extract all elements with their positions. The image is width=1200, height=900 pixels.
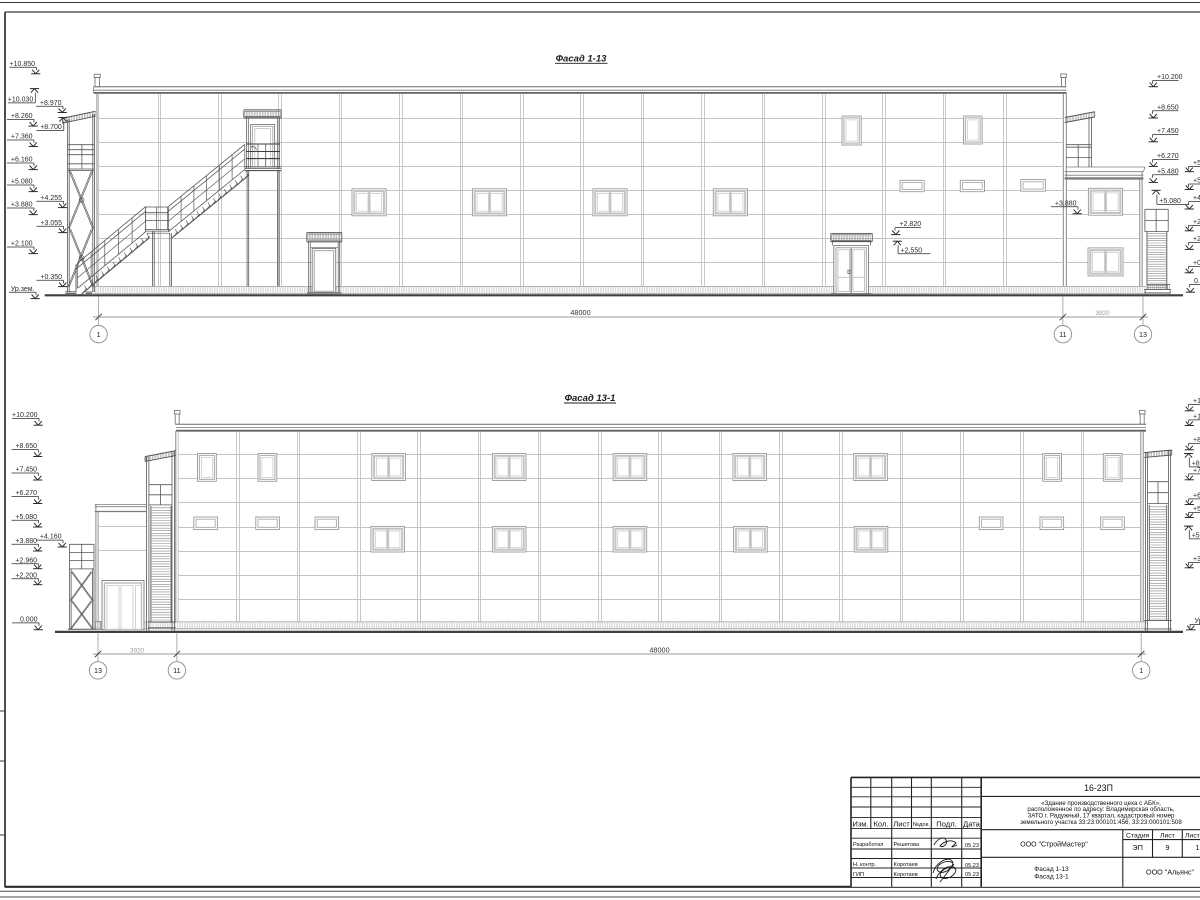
svg-text:+5.080: +5.080 [1193,506,1200,513]
svg-text:3920: 3920 [1095,310,1110,317]
svg-text:+6.160: +6.160 [11,157,33,164]
svg-text:+5.080: +5.080 [1159,198,1181,205]
svg-text:Коротаев: Коротаев [894,872,918,878]
svg-text:+5.480: +5.480 [1193,178,1200,185]
svg-text:№док.: №док. [913,822,930,828]
svg-text:+10.850: +10.850 [10,61,36,68]
svg-text:+8.970: +8.970 [1193,437,1200,444]
svg-text:Кол.: Кол. [873,819,888,828]
svg-text:Ур.зем.: Ур.зем. [11,286,35,293]
svg-text:+10.200: +10.200 [1157,74,1183,81]
svg-text:9: 9 [1165,843,1169,852]
svg-text:+6.270: +6.270 [15,490,37,497]
svg-text:+5.480: +5.480 [1157,168,1179,175]
svg-text:+8.650: +8.650 [1157,104,1179,111]
svg-text:+6.270: +6.270 [1157,153,1179,160]
svg-text:Подл.: Подл. [936,819,957,828]
svg-text:Ур.зем.: Ур.зем. [1195,618,1200,625]
svg-text:Изм.: Изм. [852,819,868,828]
svg-text:+8.260: +8.260 [11,113,33,120]
svg-text:+3.880: +3.880 [11,202,33,209]
svg-text:0.000: 0.000 [20,617,38,624]
svg-text:+5.080: +5.080 [11,179,33,186]
svg-text:+2.100: +2.100 [11,241,33,248]
svg-text:+5.080: +5.080 [15,514,37,521]
svg-text:Листов: Листов [1185,832,1200,839]
svg-text:+8.970: +8.970 [40,100,62,107]
svg-text:48000: 48000 [649,645,669,654]
svg-text:+0.350: +0.350 [1193,260,1200,267]
svg-text:05.23: 05.23 [965,872,979,878]
svg-text:05.23: 05.23 [965,843,979,849]
svg-text:+4.255: +4.255 [40,195,62,202]
svg-text:Фасад 1-13: Фасад 1-13 [1034,866,1069,873]
svg-text:+0.350: +0.350 [40,274,62,281]
svg-text:1: 1 [1139,666,1143,675]
svg-text:+2.550: +2.550 [1193,236,1200,243]
svg-text:+3.880: +3.880 [15,538,37,545]
svg-text:+6.160: +6.160 [1193,493,1200,500]
svg-text:05.23: 05.23 [965,863,979,869]
svg-text:+2.550: +2.550 [901,247,923,254]
svg-text:+5.180: +5.180 [1193,160,1200,167]
svg-text:1: 1 [1195,843,1199,852]
svg-text:Фасад 13-1: Фасад 13-1 [1034,874,1069,881]
svg-text:ГИП: ГИП [853,872,864,878]
svg-text:+4.160: +4.160 [40,534,62,541]
svg-text:+10.850: +10.850 [1193,398,1200,405]
svg-text:48000: 48000 [570,308,590,317]
svg-text:0.000: 0.000 [1194,278,1200,285]
svg-text:+2.820: +2.820 [900,221,922,228]
svg-text:Коротаев: Коротаев [894,862,918,868]
svg-text:Н. контр.: Н. контр. [853,862,877,868]
svg-text:+7.360: +7.360 [11,134,33,141]
svg-text:+8.700: +8.700 [40,124,62,131]
svg-text:Разработал: Разработал [853,842,883,848]
svg-text:Решетова: Решетова [894,842,921,848]
svg-text:+10.030: +10.030 [1193,414,1200,421]
svg-text:+2.960: +2.960 [15,557,37,564]
svg-text:+7.450: +7.450 [15,467,37,474]
svg-text:+3.055: +3.055 [1193,556,1200,563]
svg-text:+8.700: +8.700 [1192,461,1200,468]
svg-text:+7.360: +7.360 [1193,468,1200,475]
svg-text:+8.650: +8.650 [15,443,37,450]
svg-text:16-23П: 16-23П [1084,783,1113,793]
svg-text:13: 13 [1139,330,1147,339]
svg-text:Фасад 13-1: Фасад 13-1 [565,393,616,404]
svg-text:+2.200: +2.200 [15,572,37,579]
svg-text:ООО "Альянс": ООО "Альянс" [1146,868,1195,877]
svg-text:Лист: Лист [893,819,910,828]
svg-text:Стадия: Стадия [1126,832,1149,839]
svg-text:ЭП: ЭП [1132,843,1143,852]
svg-text:+7.450: +7.450 [1157,128,1179,135]
svg-text:11: 11 [1059,330,1066,339]
svg-text:+3.880: +3.880 [1055,200,1077,207]
svg-text:1: 1 [97,330,101,339]
svg-text:+2.820: +2.820 [1193,219,1200,226]
svg-text:Дата: Дата [963,819,981,828]
svg-text:Лист: Лист [1160,832,1175,839]
svg-text:ООО "СтройМастер": ООО "СтройМастер" [1020,840,1088,848]
svg-text:+10.030: +10.030 [8,97,34,104]
svg-text:земельного участка 33:23:00010: земельного участка 33:23:000101:456, 33:… [1020,819,1182,826]
svg-text:3920: 3920 [130,648,145,655]
svg-text:+5.480: +5.480 [1192,533,1200,540]
svg-text:13: 13 [94,666,102,675]
svg-text:+3.055: +3.055 [40,220,62,227]
svg-text:+10.200: +10.200 [12,412,38,419]
svg-text:11: 11 [173,666,180,675]
svg-text:+4.255: +4.255 [1193,195,1200,202]
